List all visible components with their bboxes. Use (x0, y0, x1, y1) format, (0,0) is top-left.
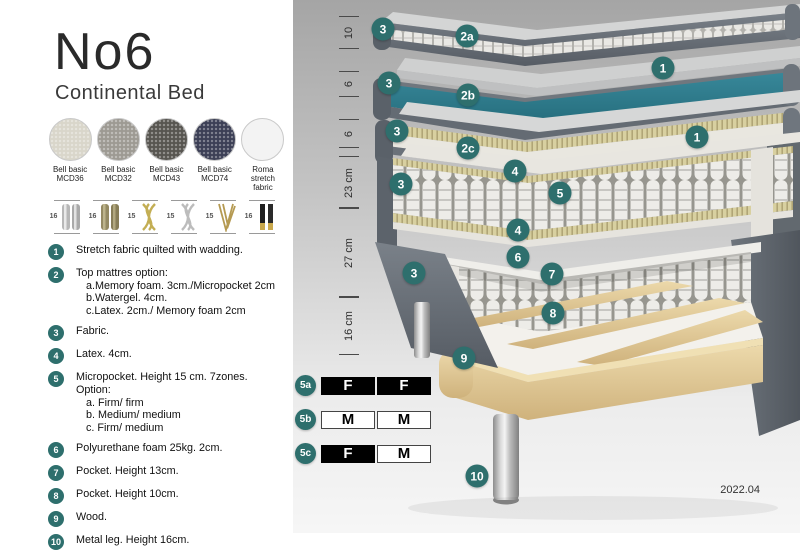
legend-item-9: 9 Wood. (48, 511, 285, 527)
legend-item-10: 10 Metal leg. Height 16cm. (48, 534, 285, 550)
callout-2b-watergel: 2b (457, 84, 480, 107)
leg-height-label: 16 (50, 213, 58, 220)
callout-9-wood: 9 (453, 347, 476, 370)
legend-number-badge: 10 (48, 534, 64, 550)
callout-10-metal-leg: 10 (466, 465, 489, 488)
leg-option-gold-twist: 15 (126, 200, 163, 234)
firmness-bar: M M (321, 411, 431, 429)
legend-item-8: 8 Pocket. Height 10cm. (48, 488, 285, 504)
legend-text: Fabric. (76, 325, 109, 341)
swatch-mcd32: Bell basic MCD32 (96, 118, 140, 193)
legend-subline: c.Latex. 2cm./ Memory foam 2cm (86, 305, 275, 318)
legend-number-badge: 1 (48, 244, 64, 260)
legend-text: Top mattres option: (76, 267, 275, 280)
firmness-row-5b: 5b M M (295, 409, 431, 430)
callout-1-stretch: 1 (652, 57, 675, 80)
fabric-swatch-icon (145, 118, 188, 161)
swatch-roma: Roma stretch fabric (241, 118, 285, 193)
callout-1-stretch: 1 (686, 126, 709, 149)
ruler-segment-6b: 6 (339, 119, 359, 148)
swatch-mcd74: Bell basic MCD74 (193, 118, 237, 193)
callout-3-fabric: 3 (378, 72, 401, 95)
firmness-row-5c: 5c F M (295, 443, 431, 464)
legend-text: Pocket. Height 13cm. (76, 465, 179, 481)
callout-4-latex: 4 (504, 160, 527, 183)
dimension-label: 27 cm (343, 238, 355, 268)
fabric-swatches: Bell basic MCD36 Bell basic MCD32 Bell b… (48, 118, 285, 193)
tick-line (249, 233, 275, 234)
swatch-mcd36: Bell basic MCD36 (48, 118, 92, 193)
fabric-swatch-icon (49, 118, 92, 161)
callout-6-foam: 6 (507, 246, 530, 269)
ruler-segment-6a: 6 (339, 71, 359, 97)
callout-8-pocket10: 8 (542, 302, 565, 325)
firmness-badge: 5b (295, 409, 316, 430)
legend-number-badge: 8 (48, 488, 64, 504)
callout-2c-latex: 2c (457, 137, 480, 160)
version-date: 2022.04 (720, 484, 760, 496)
legend-number-badge: 9 (48, 511, 64, 527)
callout-5-micropocket: 5 (549, 182, 572, 205)
legend-number-badge: 4 (48, 348, 64, 364)
legend-subline: b. Medium/ medium (86, 409, 285, 422)
leg-options: 16 16 15 (48, 200, 285, 234)
fabric-swatch-icon (241, 118, 284, 161)
legend-item-3: 3 Fabric. (48, 325, 285, 341)
legend-number-badge: 6 (48, 442, 64, 458)
base-27cm (375, 230, 800, 520)
swatch-label: Roma stretch fabric (241, 165, 285, 193)
leg-height-label: 15 (128, 213, 136, 220)
dimension-label: 6 (343, 81, 355, 87)
tick-line (210, 233, 236, 234)
legend-subline: b.Watergel. 4cm. (86, 292, 275, 305)
legend-subline: c. Firm/ medium (86, 422, 285, 435)
ruler-segment-23cm: 23 cm (339, 156, 359, 209)
callout-7-pocket13: 7 (541, 263, 564, 286)
leg-option-hairpin: 15 (204, 200, 241, 234)
firmness-cell: M (321, 411, 375, 429)
dimension-label: 6 (343, 130, 355, 136)
legend-item-6: 6 Polyurethane foam 25kg. 2cm. (48, 442, 285, 458)
firmness-bar: F F (321, 377, 431, 395)
fabric-swatch-icon (97, 118, 140, 161)
tick-line (54, 233, 80, 234)
black-gold-leg-icon (254, 202, 278, 232)
product-subtitle: Continental Bed (55, 82, 285, 105)
legend-text: Metal leg. Height 16cm. (76, 534, 189, 550)
swatch-label: Bell basic MCD36 (53, 165, 87, 183)
legend-number-badge: 7 (48, 465, 64, 481)
callout-3-fabric: 3 (372, 18, 395, 41)
silver-twist-leg-icon (176, 202, 200, 232)
firmness-row-5a: 5a F F (295, 375, 431, 396)
ruler-segment-27cm: 27 cm (339, 207, 359, 298)
legend-number-badge: 2 (48, 267, 64, 283)
legend-list: 1 Stretch fabric quilted with wadding. 2… (48, 244, 285, 550)
callout-2a-topper: 2a (456, 25, 479, 48)
leg-option-silver-twist: 15 (165, 200, 202, 234)
legend-number-badge: 3 (48, 325, 64, 341)
callout-3-fabric: 3 (390, 173, 413, 196)
leg-height-label: 16 (89, 213, 97, 220)
swatch-label: Bell basic MCD43 (149, 165, 183, 183)
firmness-cell: F (321, 377, 375, 395)
firmness-cell: M (377, 411, 431, 429)
legend-number-badge: 5 (48, 371, 64, 387)
leg-option-black-gold: 16 (243, 200, 280, 234)
dimension-label: 23 cm (343, 168, 355, 198)
chrome-leg-icon (59, 202, 83, 232)
callout-3-fabric: 3 (403, 262, 426, 285)
swatch-label: Bell basic MCD32 (101, 165, 135, 183)
callout-4-latex: 4 (507, 219, 530, 242)
legend-item-2: 2 Top mattres option: a.Memory foam. 3cm… (48, 267, 285, 318)
fabric-swatch-icon (193, 118, 236, 161)
legend-item-5: 5 Micropocket. Height 15 cm. 7zones. Opt… (48, 371, 285, 435)
leg-option-bronze: 16 (87, 200, 124, 234)
legend-text: Pocket. Height 10cm. (76, 488, 179, 504)
ruler-segment-10: 10 (339, 16, 359, 49)
firmness-bar: F M (321, 445, 431, 463)
legend-text: Polyurethane foam 25kg. 2cm. (76, 442, 222, 458)
gold-twist-leg-icon (137, 202, 161, 232)
leg-height-label: 15 (167, 213, 175, 220)
firmness-cell: F (377, 377, 431, 395)
info-column: No6 Continental Bed Bell basic MCD36 Bel… (0, 0, 293, 533)
tick-line (171, 233, 197, 234)
legend-text: Wood. (76, 511, 107, 527)
legend-item-4: 4 Latex. 4cm. (48, 348, 285, 364)
legend-text: Micropocket. Height 15 cm. 7zones. Optio… (76, 371, 285, 397)
dimension-label: 16 cm (343, 311, 355, 341)
legend-subline: a. Firm/ firm (86, 397, 285, 410)
legend-text: Stretch fabric quilted with wadding. (76, 244, 243, 260)
firmness-badge: 5a (295, 375, 316, 396)
leg-height-label: 15 (206, 213, 214, 220)
dimension-label: 10 (343, 26, 355, 38)
legend-text: Latex. 4cm. (76, 348, 132, 364)
legend-subline: a.Memory foam. 3cm./Micropocket 2cm (86, 280, 275, 293)
swatch-mcd43: Bell basic MCD43 (144, 118, 188, 193)
bronze-leg-icon (98, 202, 122, 232)
tick-line (132, 233, 158, 234)
firmness-cell: F (321, 445, 375, 463)
leg-option-chrome: 16 (48, 200, 85, 234)
firmness-badge: 5c (295, 443, 316, 464)
ruler-segment-16cm: 16 cm (339, 296, 359, 355)
legend-item-7: 7 Pocket. Height 13cm. (48, 465, 285, 481)
firmness-cell: M (377, 445, 431, 463)
callout-3-fabric: 3 (386, 120, 409, 143)
product-title: No6 (54, 26, 285, 78)
leg-height-label: 16 (245, 213, 253, 220)
hairpin-leg-icon (215, 202, 239, 232)
tick-line (93, 233, 119, 234)
bed-diagram-panel: 10 6 6 23 cm 27 cm 16 cm 3 2a 1 3 2b 3 2… (293, 0, 800, 533)
swatch-label: Bell basic MCD74 (198, 165, 232, 183)
legend-item-1: 1 Stretch fabric quilted with wadding. (48, 244, 285, 260)
